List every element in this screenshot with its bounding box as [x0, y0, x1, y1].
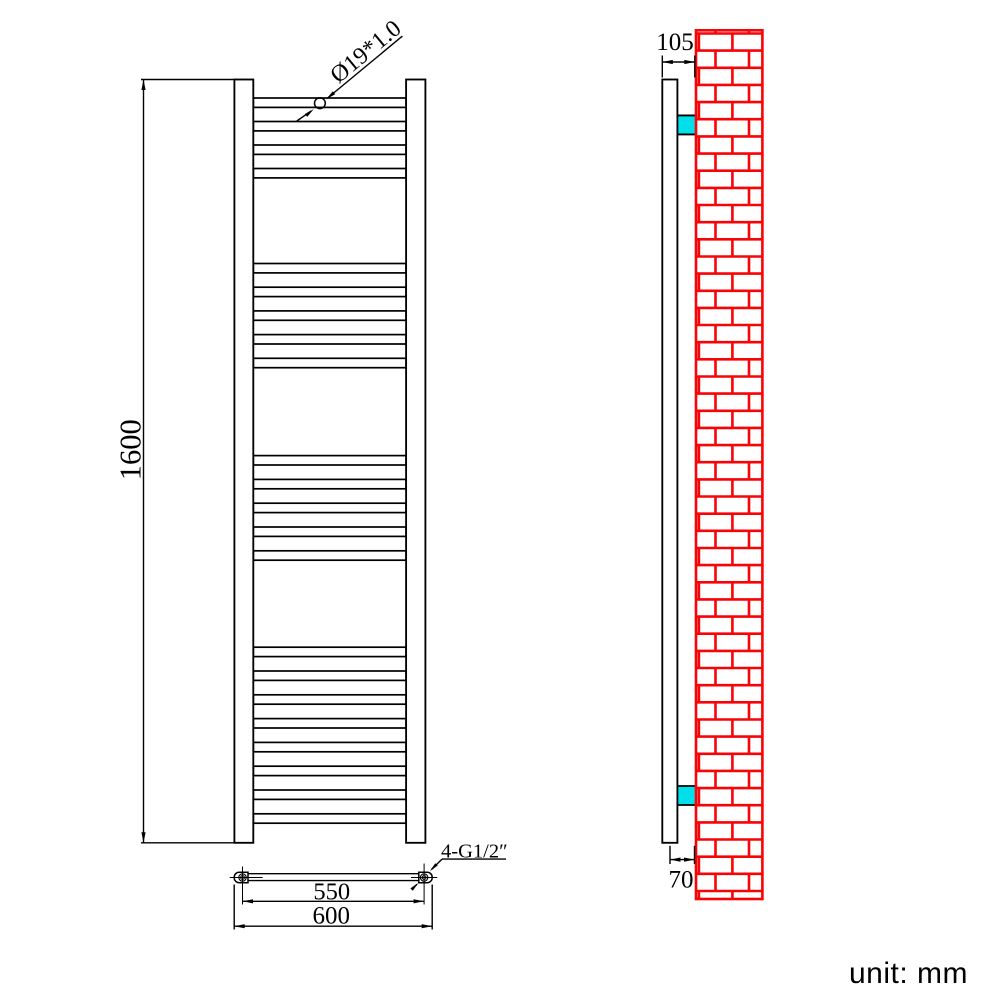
svg-text:1600: 1600: [114, 419, 148, 480]
svg-text:Ø19*1.0: Ø19*1.0: [326, 16, 407, 89]
svg-text:600: 600: [312, 902, 350, 929]
svg-text:70: 70: [669, 867, 694, 894]
svg-text:4-G1/2″: 4-G1/2″: [441, 841, 508, 863]
svg-text:unit: mm: unit: mm: [849, 957, 968, 990]
svg-text:105: 105: [656, 29, 694, 56]
